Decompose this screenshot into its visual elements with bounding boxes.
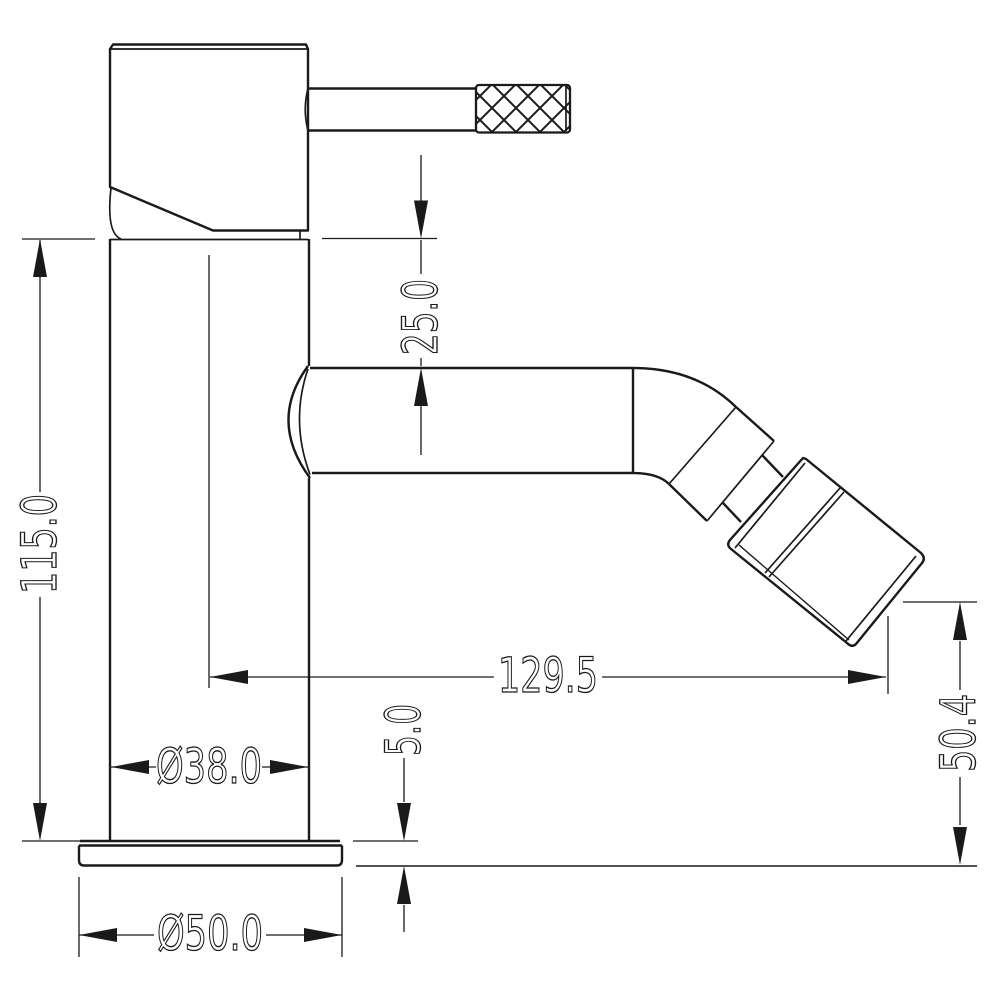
dim-label-body-diameter: Ø38.0 [156, 739, 262, 795]
dim-label-drop: 25.0 [393, 279, 449, 355]
technical-drawing-page: 115.0 25.0 Ø38.0 129.5 [0, 0, 1000, 1000]
faucet-technical-drawing: 115.0 25.0 Ø38.0 129.5 [0, 0, 1000, 1000]
drawing-background [0, 0, 1000, 1000]
dim-label-outlet-height: 50.4 [931, 694, 987, 772]
dim-label-overall-height: 115.0 [12, 494, 68, 594]
dim-label-base-diameter: Ø50.0 [157, 906, 263, 962]
dim-label-spout-reach: 129.5 [498, 648, 598, 704]
dim-label-base-thickness: 5.0 [376, 704, 432, 756]
knurled-grip [476, 85, 570, 133]
knurl-texture [476, 85, 570, 133]
